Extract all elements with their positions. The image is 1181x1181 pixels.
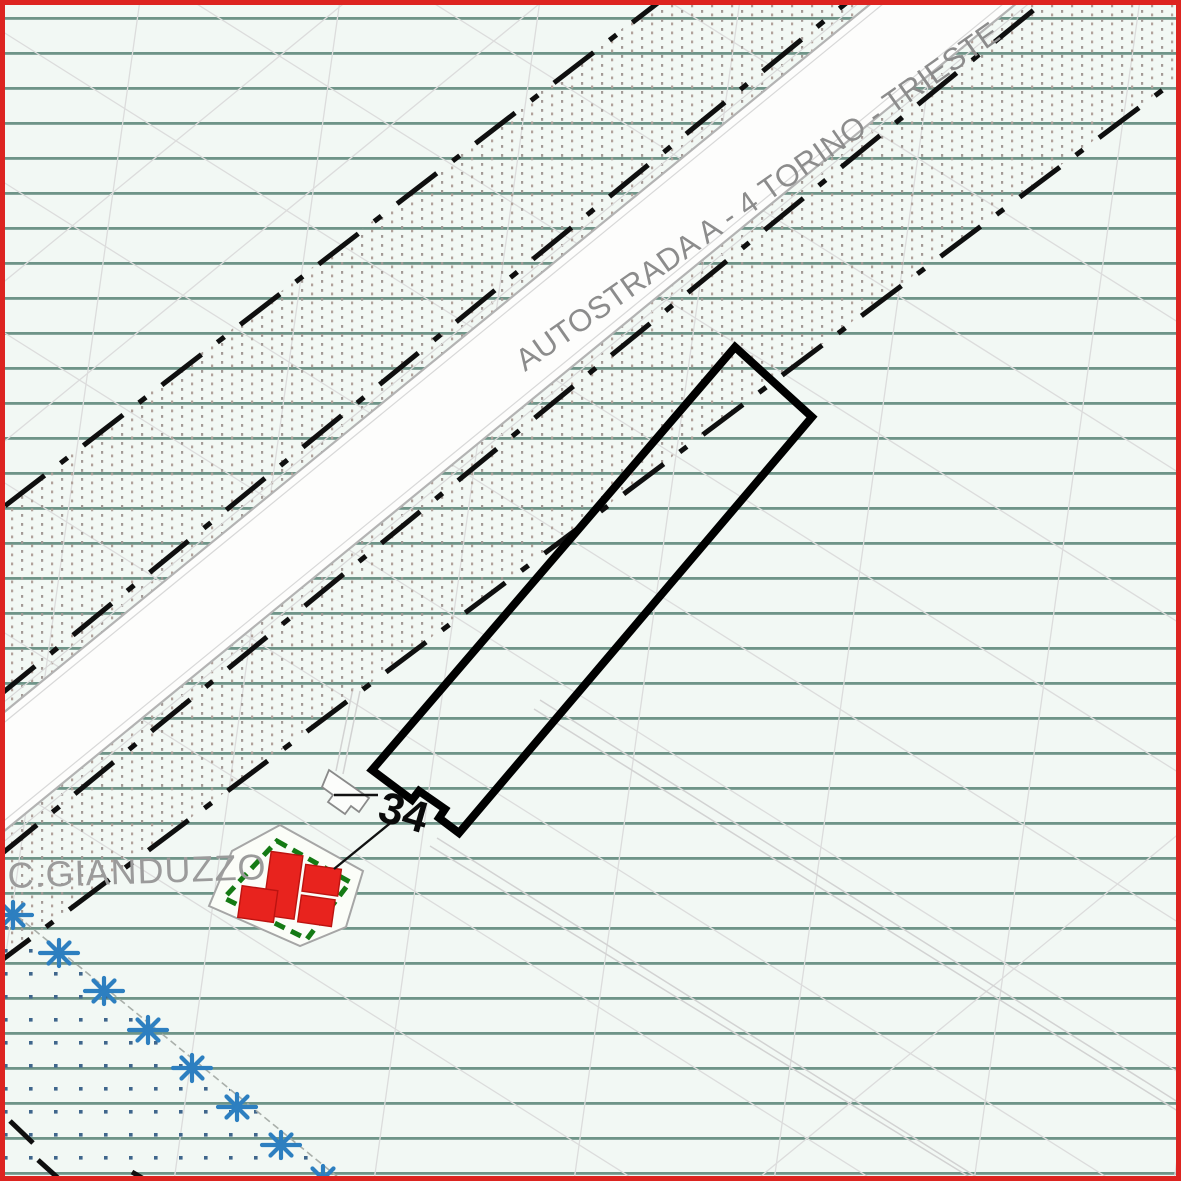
farm-building xyxy=(298,895,335,926)
zoning-map-sheet[interactable]: AUTOSTRADA A - 4 TORINO - TRIESTE xyxy=(0,0,1181,1181)
zoning-map-canvas: AUTOSTRADA A - 4 TORINO - TRIESTE xyxy=(0,0,1181,1181)
farm-building xyxy=(238,886,278,923)
